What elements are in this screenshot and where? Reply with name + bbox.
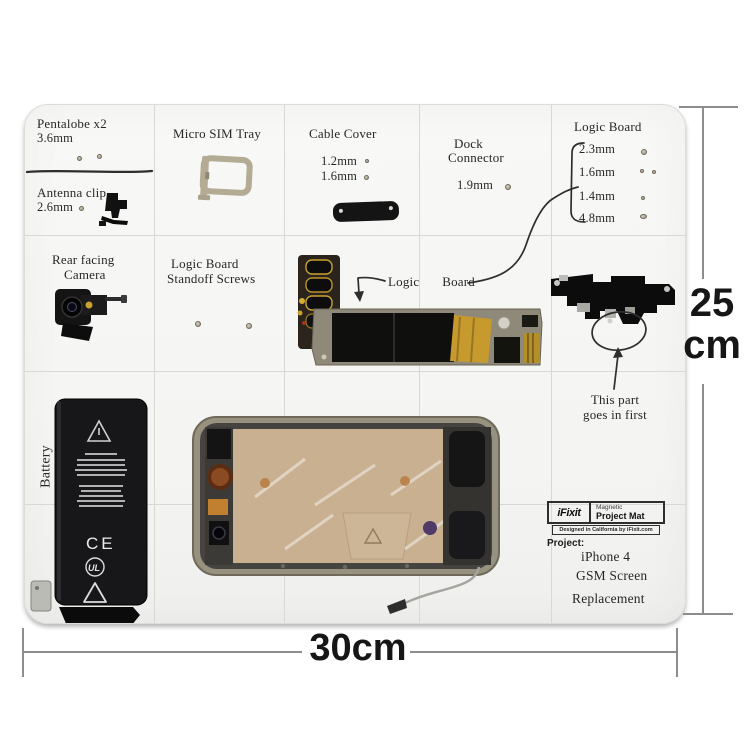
first-part-arrow (614, 355, 618, 389)
width-dimension-cap-right (676, 628, 678, 677)
width-dimension-value: 30cm (302, 627, 414, 669)
callout-curve (468, 187, 578, 283)
height-dimension-cap-bottom (683, 613, 733, 615)
width-dimension-line (23, 651, 302, 653)
product-photo: Pentalobe x2 3.6mm Antenna clip 2.6mm Mi… (0, 0, 750, 750)
magnetic-project-mat: Pentalobe x2 3.6mm Antenna clip 2.6mm Mi… (24, 104, 686, 624)
width-dimension-line (410, 651, 677, 653)
height-dimension-cap-top (679, 106, 738, 108)
height-dimension-value: 25 (678, 282, 746, 324)
height-dimension-line (702, 107, 704, 279)
first-part-arrowhead (613, 347, 623, 358)
height-dimension-unit: cm (678, 324, 746, 366)
cell-divider-line (27, 171, 152, 172)
size-bracket (571, 143, 585, 222)
hand-annotations (25, 105, 686, 624)
first-part-circle (590, 309, 648, 353)
width-dimension-cap-left (22, 628, 24, 677)
height-dimension-line (702, 384, 704, 614)
logic-board-arrowhead (354, 291, 364, 302)
